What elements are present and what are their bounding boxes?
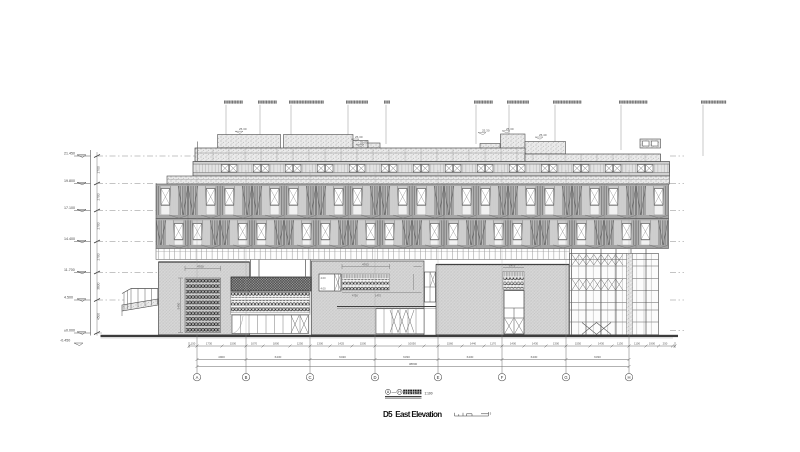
svg-text:1430: 1430 [598, 341, 605, 345]
svg-text:10050: 10050 [408, 341, 416, 345]
svg-text:2700: 2700 [97, 166, 101, 173]
svg-text:11.700: 11.700 [64, 268, 75, 272]
svg-text:-0.450: -0.450 [60, 339, 70, 343]
svg-text:25.00: 25.00 [360, 141, 368, 145]
svg-text:19.800: 19.800 [64, 179, 75, 183]
svg-text:2700: 2700 [97, 193, 101, 200]
svg-text:B: B [245, 375, 248, 380]
svg-text:25.30: 25.30 [355, 135, 363, 139]
svg-text:4700: 4700 [197, 265, 204, 269]
svg-text:±0.000: ±0.000 [64, 328, 75, 332]
svg-text:14.400: 14.400 [64, 237, 75, 241]
svg-text:25.30: 25.30 [506, 127, 514, 131]
svg-text:4750: 4750 [352, 294, 358, 298]
svg-text:4.00: 4.00 [321, 287, 327, 291]
svg-text:4.500: 4.500 [64, 295, 73, 299]
svg-text:6430: 6430 [339, 355, 346, 359]
svg-text:1440: 1440 [470, 341, 477, 345]
svg-text:D: D [373, 375, 376, 380]
svg-text:1300: 1300 [553, 341, 560, 345]
svg-text:1425: 1425 [338, 341, 345, 345]
svg-text:17.100: 17.100 [64, 206, 75, 210]
svg-text:1250: 1250 [297, 341, 304, 345]
svg-text:1070: 1070 [251, 341, 258, 345]
svg-text:21.450: 21.450 [64, 151, 75, 155]
svg-text:1900: 1900 [649, 341, 656, 345]
svg-text:1100: 1100 [634, 341, 640, 345]
svg-text:25.30: 25.30 [482, 129, 490, 133]
svg-text:6430: 6430 [531, 355, 538, 359]
svg-text:2700: 2700 [97, 253, 101, 260]
svg-text:25.40: 25.40 [539, 133, 547, 137]
svg-text:—: — [392, 390, 397, 395]
svg-text:C: C [308, 375, 311, 380]
svg-text:1400: 1400 [510, 341, 517, 345]
svg-text:6430: 6430 [467, 355, 474, 359]
svg-text:6330: 6330 [594, 355, 601, 359]
svg-text:D5 East Elevation: D5 East Elevation [383, 410, 442, 419]
svg-text:1475: 1475 [509, 264, 516, 268]
svg-text:1500: 1500 [360, 341, 367, 345]
svg-text:4500: 4500 [97, 313, 101, 320]
svg-text:1430: 1430 [532, 341, 539, 345]
svg-text:1300: 1300 [317, 341, 324, 345]
svg-text:25.30: 25.30 [239, 127, 247, 131]
svg-text:E: E [437, 375, 440, 380]
svg-text:1550: 1550 [575, 341, 582, 345]
svg-text:6330: 6330 [403, 355, 410, 359]
svg-text:1500: 1500 [230, 341, 237, 345]
svg-text:4763: 4763 [362, 263, 369, 267]
svg-text:F: F [501, 375, 504, 380]
svg-text:1475: 1475 [375, 294, 381, 298]
svg-text:1:100: 1:100 [425, 391, 433, 395]
svg-text:1730: 1730 [206, 341, 213, 345]
svg-text:A: A [196, 375, 199, 380]
svg-text:3600: 3600 [97, 282, 101, 289]
svg-text:6430: 6430 [275, 355, 282, 359]
svg-text:150: 150 [191, 341, 196, 345]
svg-text:1130: 1130 [617, 341, 623, 345]
svg-text:4900: 4900 [218, 355, 225, 359]
svg-text:4.00: 4.00 [321, 276, 327, 280]
svg-text:250: 250 [663, 341, 668, 345]
svg-text:2700: 2700 [97, 222, 101, 229]
svg-text:G: G [564, 375, 567, 380]
svg-text:H: H [627, 375, 630, 380]
svg-text:38800: 38800 [409, 362, 418, 366]
svg-text:1170: 1170 [490, 341, 496, 345]
svg-text:1800: 1800 [273, 341, 280, 345]
svg-text:1560: 1560 [447, 341, 454, 345]
svg-text:5450: 5450 [177, 302, 181, 309]
